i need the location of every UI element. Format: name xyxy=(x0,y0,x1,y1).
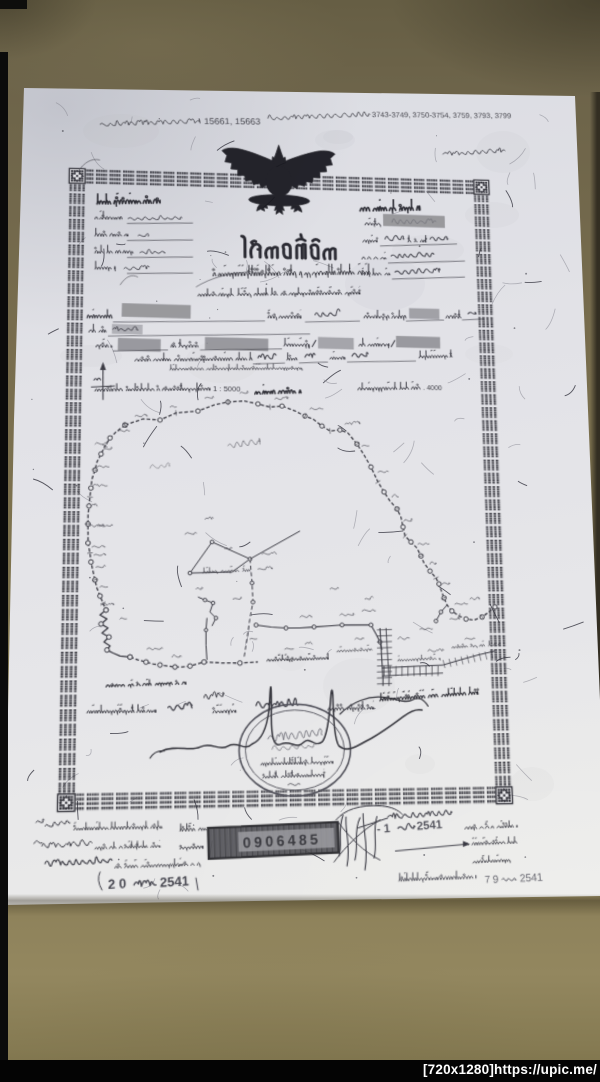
svg-text:2541: 2541 xyxy=(160,875,190,891)
svg-text:2 0: 2 0 xyxy=(108,877,127,892)
svg-text:2541: 2541 xyxy=(519,872,543,886)
svg-text:15661, 15663: 15661, 15663 xyxy=(204,116,261,126)
svg-text:3743-3749, 3750-3754, 3759, 37: 3743-3749, 3750-3754, 3759, 3793, 3799 xyxy=(372,110,512,120)
svg-text:. 4000: . 4000 xyxy=(423,385,443,392)
svg-text:9: 9 xyxy=(492,874,499,887)
svg-text:7: 7 xyxy=(484,874,490,886)
svg-text:1 : 5000: 1 : 5000 xyxy=(213,384,240,393)
svg-text:- 1: - 1 xyxy=(376,822,391,836)
svg-text:2541: 2541 xyxy=(416,818,443,833)
